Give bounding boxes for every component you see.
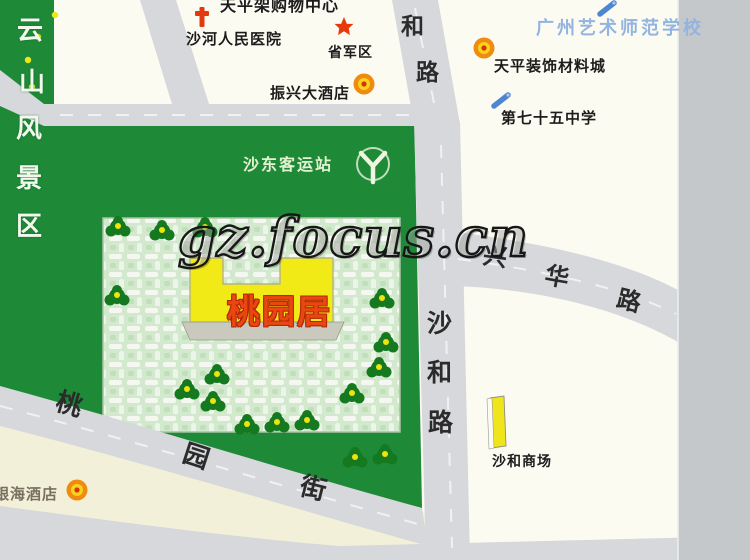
poi-military-region: 省军区 [328,42,373,62]
poi-yinhai-hotel: 银海酒店 [0,483,58,504]
bus-station-label: 沙东客运站 [243,151,333,175]
road-label-he-lu-char: 和 [401,16,424,39]
road-label-sha-he-lu-char: 和 [427,360,452,385]
road-label-he-lu-char: 路 [416,62,439,85]
poi-art-school: 广州艺术师范学校 [536,14,704,40]
poi-shahe-market: 沙和商场 [492,451,552,471]
orange-badge-icon [67,480,88,501]
watermark: gz.focus.cn [178,205,529,269]
poi-shopping-center: 天平架购物中心 [220,0,339,16]
poi-hospital: 沙河人民医院 [186,28,282,49]
scenic-area-label-char: 风 [16,116,42,142]
poi-material-city: 天平装饰材料城 [494,55,606,76]
market-building-icon [487,396,506,449]
scenic-area-label-char: 景 [16,166,42,192]
map-edge-band [678,0,750,560]
orange-badge-icon [474,38,495,59]
map-canvas: 云 山 风 景 区 和 路 沙 和 路 兴 华 路 桃 园 街 沙东客运站 桃园… [0,0,750,560]
scenic-area-label-char: 云 [17,18,43,44]
poi-zhenxing-hotel: 振兴大酒店 [270,82,350,103]
road-label-sha-he-lu-char: 沙 [427,311,452,336]
poi-no75-middle-school: 第七十五中学 [501,107,597,128]
scenic-area-label-char: 区 [16,214,42,240]
residence-label: 桃园居 [227,285,332,333]
orange-badge-icon [354,74,375,95]
scenic-area-label-char: 山 [19,70,45,96]
road-label-xing-hua-lu-char: 华 [543,263,571,291]
base-map [0,0,750,560]
road-label-sha-he-lu-char: 路 [428,410,453,435]
